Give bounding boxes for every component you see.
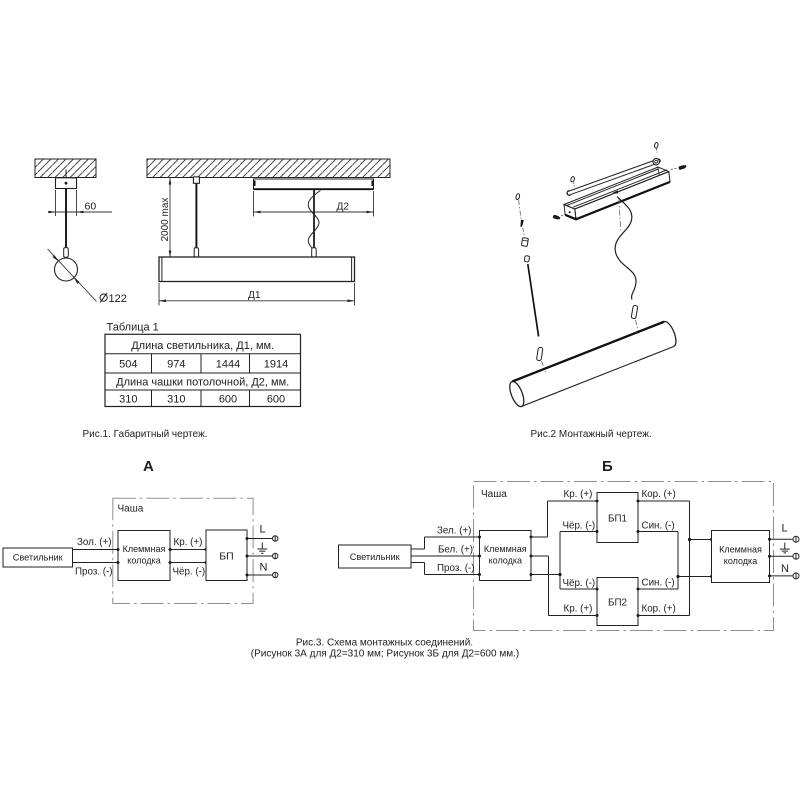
svg-text:Кор. (+): Кор. (+) (642, 489, 676, 500)
svg-text:Чёр. (-): Чёр. (-) (563, 578, 596, 589)
svg-text:60: 60 (85, 201, 97, 213)
svg-text:Зел. (+): Зел. (+) (437, 526, 471, 537)
svg-text:колодка: колодка (724, 556, 757, 566)
svg-text:1444: 1444 (216, 359, 240, 371)
svg-text:Чаша: Чаша (481, 489, 507, 500)
svg-text:БП2: БП2 (608, 598, 627, 609)
svg-text:Син. (-): Син. (-) (642, 521, 675, 532)
svg-text:974: 974 (167, 359, 185, 371)
svg-text:L: L (260, 524, 266, 536)
svg-text:Бел. (+): Бел. (+) (438, 545, 473, 556)
svg-text:Кр. (+): Кр. (+) (564, 604, 593, 615)
svg-text:Чёр. (-): Чёр. (-) (173, 567, 206, 578)
svg-text:Рис.1. Габаритный чертеж.: Рис.1. Габаритный чертеж. (83, 428, 208, 440)
svg-text:2000 max: 2000 max (160, 198, 171, 242)
svg-text:Рис.2 Монтажный чертеж.: Рис.2 Монтажный чертеж. (531, 429, 652, 440)
svg-text:1914: 1914 (264, 359, 288, 371)
svg-text:Син. (-): Син. (-) (642, 578, 675, 589)
svg-text:Д2: Д2 (337, 202, 350, 213)
svg-text:Чёр. (-): Чёр. (-) (563, 521, 596, 532)
svg-text:Чаша: Чаша (118, 504, 144, 515)
svg-text:310: 310 (119, 394, 137, 406)
svg-text:Клеммная: Клеммная (719, 545, 762, 555)
svg-text:Длина чашки потолочной, Д2, мм: Длина чашки потолочной, Д2, мм. (116, 376, 289, 388)
svg-text:Длина светильника, Д1, мм.: Длина светильника, Д1, мм. (131, 340, 274, 352)
svg-text:504: 504 (119, 359, 137, 371)
svg-text:колодка: колодка (489, 556, 522, 566)
svg-text:Светильник: Светильник (13, 553, 64, 563)
svg-text:122: 122 (109, 293, 127, 305)
svg-text:БП1: БП1 (608, 514, 627, 525)
svg-text:Д1: Д1 (248, 290, 261, 301)
svg-text:Рис.3. Схема монтажных соедине: Рис.3. Схема монтажных соединений. (296, 638, 473, 649)
svg-text:Проз. (-): Проз. (-) (437, 563, 475, 574)
svg-text:БП: БП (219, 551, 233, 563)
svg-text:Кр. (+): Кр. (+) (174, 537, 203, 548)
svg-text:Клеммная: Клеммная (484, 544, 527, 554)
svg-text:Таблица 1: Таблица 1 (107, 322, 159, 334)
svg-text:600: 600 (267, 394, 285, 406)
svg-text:Б: Б (602, 458, 613, 475)
svg-text:Кор. (+): Кор. (+) (642, 604, 676, 615)
svg-text:310: 310 (167, 394, 185, 406)
svg-text:N: N (260, 562, 268, 574)
svg-text:Проз. (-): Проз. (-) (75, 567, 113, 578)
svg-text:N: N (781, 563, 789, 575)
svg-text:Клеммная: Клеммная (123, 544, 166, 554)
svg-text:колодка: колодка (127, 556, 160, 566)
svg-text:Светильник: Светильник (350, 552, 401, 562)
svg-text:А: А (143, 458, 154, 475)
svg-text:Зол. (+): Зол. (+) (77, 537, 112, 548)
svg-text:600: 600 (219, 394, 237, 406)
svg-text:Кр. (+): Кр. (+) (564, 489, 593, 500)
svg-text:(Рисунок 3А для Д2=310 мм; Рис: (Рисунок 3А для Д2=310 мм; Рисунок 3Б дл… (251, 649, 519, 660)
svg-text:L: L (782, 523, 788, 535)
